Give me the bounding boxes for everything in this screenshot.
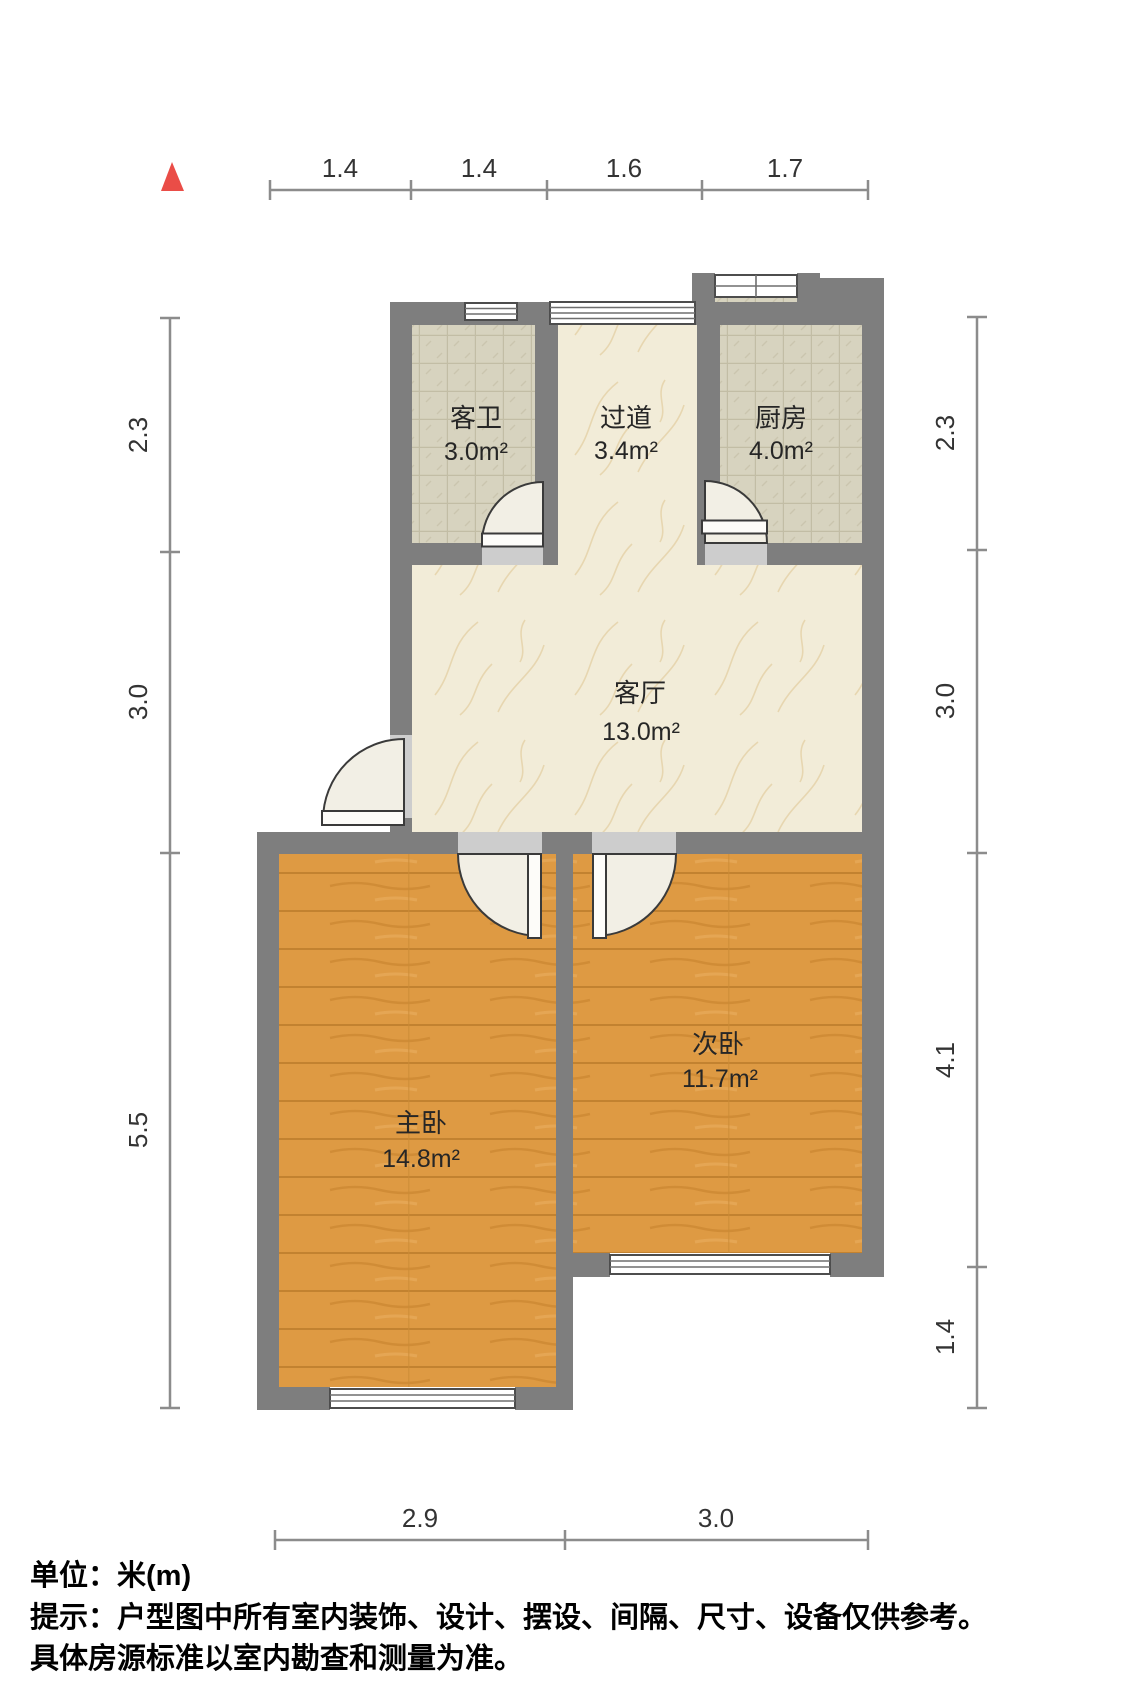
hallway-window bbox=[550, 302, 695, 324]
room-area-bathroom: 3.0m² bbox=[444, 438, 508, 466]
wall bbox=[390, 302, 412, 735]
door-leaf bbox=[593, 854, 606, 938]
room-label-living: 客厅 bbox=[614, 678, 666, 708]
wall bbox=[390, 543, 482, 565]
wall bbox=[543, 543, 558, 565]
unit-note: 单位：米(m) bbox=[30, 1558, 191, 1592]
room-label-master: 主卧 bbox=[395, 1108, 447, 1138]
ruler-right: 2.3 3.0 4.1 1.4 bbox=[930, 317, 987, 1408]
master-door-opening bbox=[458, 832, 542, 854]
dim-left-1: 2.3 bbox=[123, 417, 153, 453]
door-leaf bbox=[482, 534, 543, 547]
room-label-kitchen: 厨房 bbox=[755, 403, 807, 433]
room-area-second: 11.7m² bbox=[682, 1065, 758, 1093]
wall bbox=[676, 832, 862, 854]
ruler-bottom: 2.9 3.0 bbox=[275, 1503, 868, 1550]
kitchen-door-opening bbox=[705, 543, 767, 565]
kitchen-bay-window bbox=[715, 275, 797, 297]
door-leaf bbox=[322, 811, 404, 825]
wall bbox=[556, 854, 573, 1410]
north-arrow-icon bbox=[161, 162, 184, 191]
wall bbox=[830, 1253, 884, 1277]
wall bbox=[257, 832, 279, 1410]
wall bbox=[515, 1387, 573, 1410]
master-bedroom-window bbox=[330, 1389, 515, 1408]
dim-top-3: 1.6 bbox=[606, 153, 642, 183]
wall bbox=[862, 302, 884, 1277]
second-door-opening bbox=[592, 832, 676, 854]
ruler-left: 2.3 3.0 5.5 bbox=[123, 318, 180, 1408]
wall bbox=[542, 832, 592, 854]
floorplan-page: 客卫 3.0m² 过道 3.4m² 厨房 4.0m² 客厅 13.0m² 主卧 … bbox=[0, 0, 1144, 1692]
footer-notes: 单位：米(m) 提示：户型图中所有室内装饰、设计、摆设、间隔、尺寸、设备仅供参考… bbox=[30, 1558, 987, 1675]
disclaimer-line-2: 具体房源标准以室内勘查和测量为准。 bbox=[30, 1641, 523, 1675]
room-area-hallway: 3.4m² bbox=[594, 437, 658, 465]
disclaimer-line-1: 提示：户型图中所有室内装饰、设计、摆设、间隔、尺寸、设备仅供参考。 bbox=[30, 1600, 987, 1634]
entrance-door bbox=[322, 739, 404, 825]
bathroom-window bbox=[465, 303, 517, 320]
wall bbox=[797, 273, 820, 325]
wall bbox=[697, 543, 705, 565]
room-label-hallway: 过道 bbox=[600, 403, 652, 433]
ruler-top: 1.4 1.4 1.6 1.7 bbox=[270, 153, 868, 200]
room-area-living: 13.0m² bbox=[602, 718, 680, 746]
dim-right-2: 3.0 bbox=[930, 683, 960, 719]
dim-left-3: 5.5 bbox=[123, 1112, 153, 1148]
dim-left-2: 3.0 bbox=[123, 684, 153, 720]
door-leaf bbox=[528, 854, 541, 938]
dim-right-4: 1.4 bbox=[930, 1319, 960, 1355]
dim-bottom-2: 3.0 bbox=[698, 1503, 734, 1533]
second-bedroom-window bbox=[610, 1255, 830, 1274]
wall bbox=[767, 543, 862, 565]
dim-right-3: 4.1 bbox=[930, 1042, 960, 1078]
floorplan-canvas: 客卫 3.0m² 过道 3.4m² 厨房 4.0m² 客厅 13.0m² 主卧 … bbox=[0, 0, 1144, 1692]
room-label-bathroom: 客卫 bbox=[450, 403, 502, 433]
dim-bottom-1: 2.9 bbox=[402, 1503, 438, 1533]
wall bbox=[556, 1253, 610, 1277]
door-leaf bbox=[702, 521, 767, 534]
dim-top-1: 1.4 bbox=[322, 153, 358, 183]
room-area-master: 14.8m² bbox=[382, 1145, 460, 1173]
wall bbox=[257, 1387, 330, 1410]
room-label-second: 次卧 bbox=[692, 1029, 744, 1059]
dim-top-4: 1.7 bbox=[767, 153, 803, 183]
room-area-kitchen: 4.0m² bbox=[749, 437, 813, 465]
door-swing-arc bbox=[323, 739, 404, 820]
dim-top-2: 1.4 bbox=[461, 153, 497, 183]
dim-right-1: 2.3 bbox=[930, 415, 960, 451]
wall bbox=[257, 832, 458, 854]
